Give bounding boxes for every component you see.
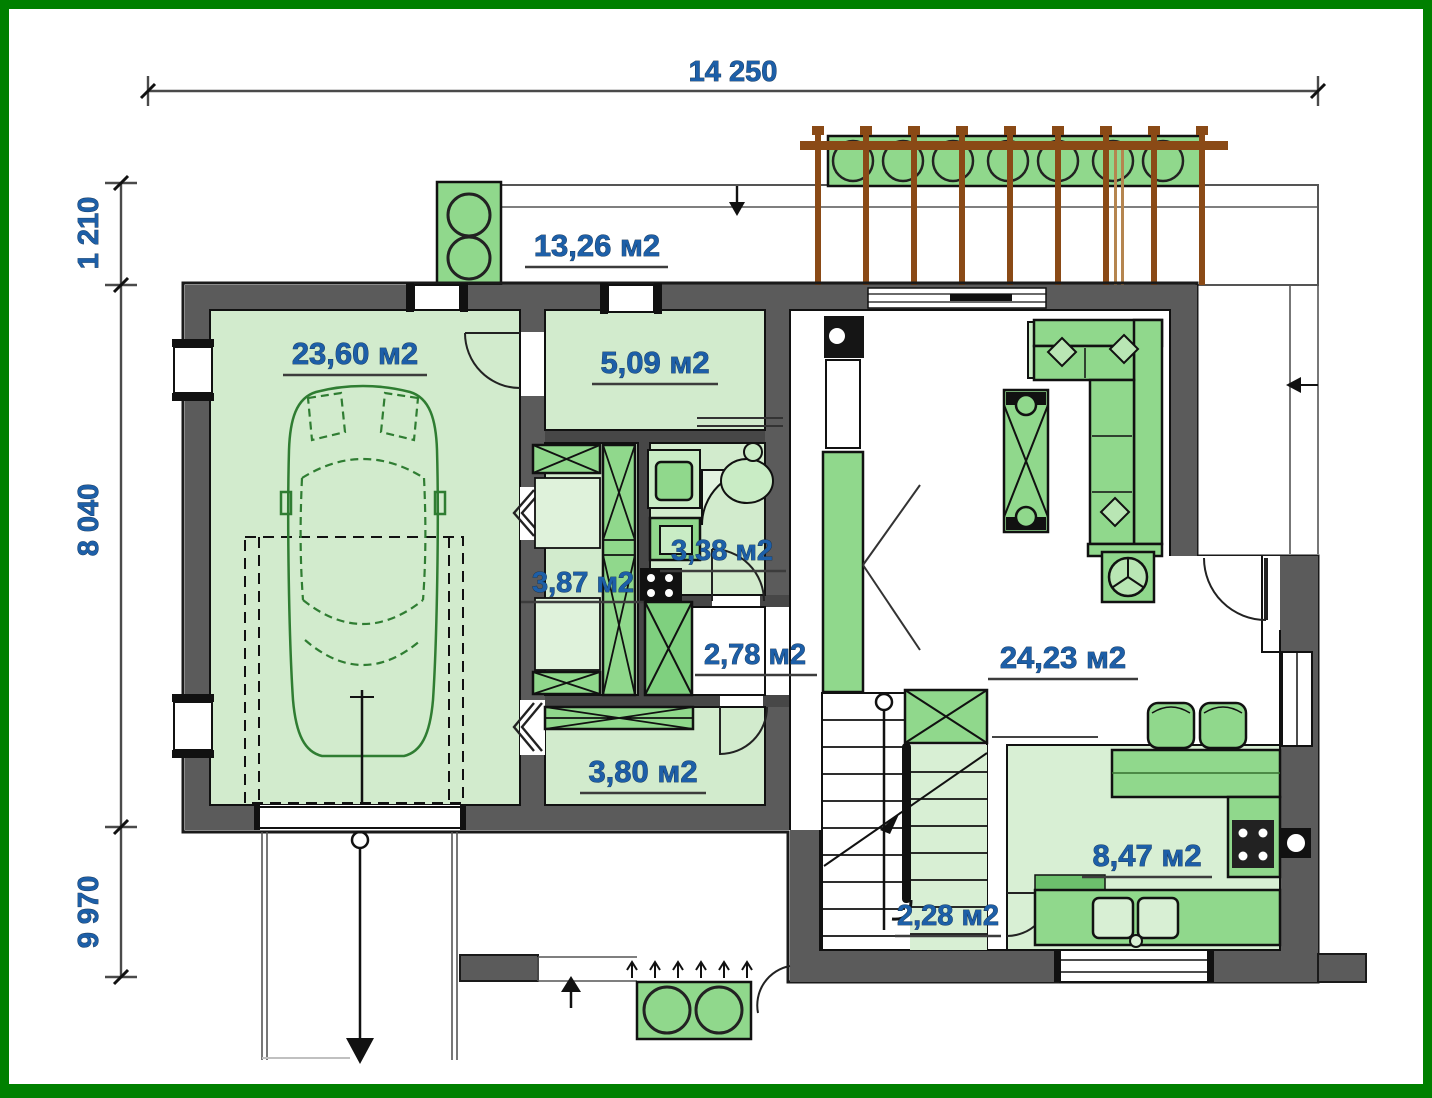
entrance-walk bbox=[460, 955, 752, 1039]
garage-window-left-lower bbox=[174, 702, 212, 750]
boiler-icon bbox=[1286, 833, 1306, 853]
kitchen-area-label: 8,47 м2 bbox=[1092, 838, 1201, 873]
stair-lobby-area-label: 2,28 м2 bbox=[897, 900, 999, 932]
garage-area-label: 23,60 м2 bbox=[292, 336, 418, 371]
sink-bowl-right bbox=[1138, 898, 1178, 938]
dimension-width-label: 14 250 bbox=[689, 56, 778, 88]
left-dimension: 1 210 8 040 9 970 bbox=[73, 176, 137, 984]
garage-door-opening bbox=[258, 805, 462, 830]
side-table bbox=[1102, 552, 1154, 602]
hedge-arrows-icon bbox=[627, 962, 752, 978]
garage-window-left-upper bbox=[174, 347, 212, 393]
pantry-window-top bbox=[608, 285, 654, 312]
boiler-unit bbox=[640, 568, 682, 602]
bathroom-area-label: 3,38 м2 bbox=[671, 535, 773, 567]
staircase: 2,28 м2 bbox=[822, 690, 1001, 950]
stove-icon bbox=[1232, 820, 1274, 868]
dimension-9970-label: 9 970 bbox=[73, 876, 105, 949]
dimension-8040-label: 8 040 bbox=[73, 484, 105, 557]
tv-cabinet bbox=[826, 360, 860, 448]
media-cabinet bbox=[823, 452, 863, 692]
coffee-table bbox=[1004, 390, 1048, 532]
toilet-icon bbox=[721, 459, 773, 503]
garage-floor bbox=[210, 310, 520, 805]
mudroom-area-label: 3,80 м2 bbox=[588, 754, 697, 789]
pantry-area-label: 5,09 м2 bbox=[600, 345, 709, 380]
sink-bowl-left bbox=[1093, 898, 1133, 938]
hall-area-label: 2,78 м2 bbox=[704, 639, 806, 671]
entry-arrow-icon bbox=[561, 976, 581, 992]
shelf-upper bbox=[535, 478, 600, 548]
stair-stringer bbox=[902, 743, 911, 903]
floor-plan-page: 14 250 1 210 8 040 9 970 13,26 м2 bbox=[0, 0, 1432, 1098]
terrace-area-label: 13,26 м2 bbox=[534, 228, 660, 263]
shelf-lower bbox=[535, 598, 600, 670]
closet-area-label: 3,87 м2 bbox=[532, 567, 634, 599]
floor-plan-drawing: 14 250 1 210 8 040 9 970 13,26 м2 bbox=[0, 0, 1432, 1098]
side-path-arrow-icon bbox=[1286, 377, 1301, 393]
garage-window-top bbox=[414, 285, 460, 310]
rear-door-swing bbox=[757, 966, 790, 1013]
chimney bbox=[437, 182, 501, 285]
faucet-icon bbox=[1130, 935, 1142, 947]
living-room-area-label: 24,23 м2 bbox=[1000, 640, 1126, 675]
dimension-1210-label: 1 210 bbox=[73, 197, 105, 270]
top-dimension: 14 250 bbox=[141, 56, 1325, 106]
kitchen-window-bottom bbox=[1060, 950, 1208, 982]
driveway-arrow-icon bbox=[346, 1038, 374, 1064]
driveway bbox=[262, 832, 457, 1064]
